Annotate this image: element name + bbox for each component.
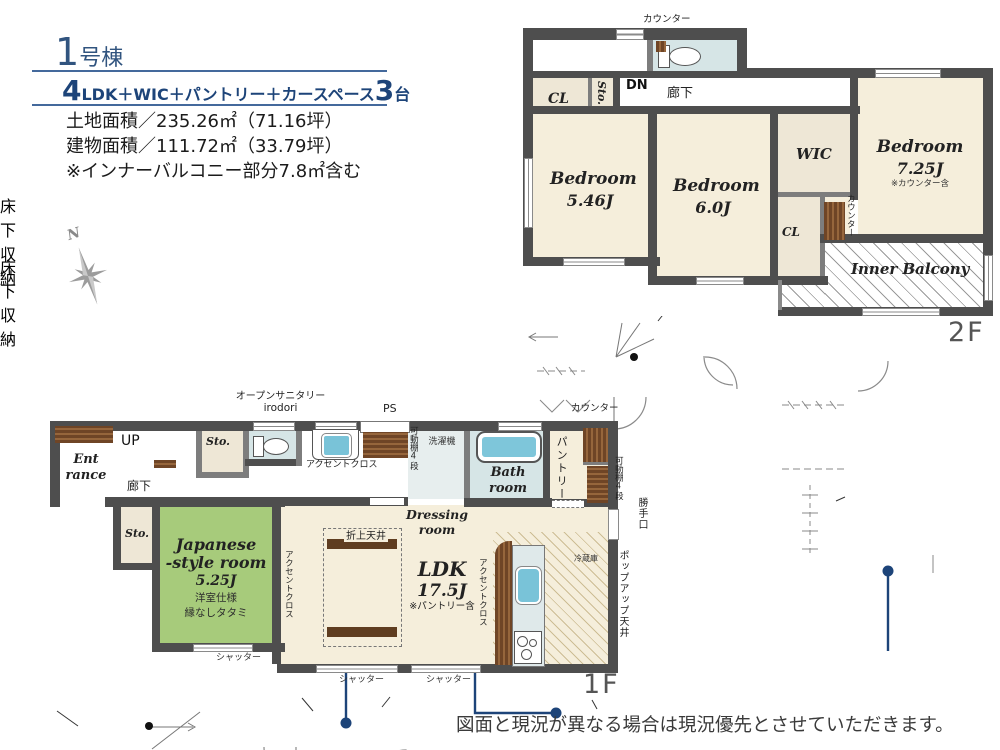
label-bedroom3-note: ※カウンター含 <box>875 180 965 189</box>
label-shutter-2: シャッター <box>339 676 384 686</box>
land-area: 土地面積／235.26㎡（71.16坪） <box>66 112 343 132</box>
label-bedroom2-size: 6.0J <box>673 199 753 217</box>
wall <box>523 106 860 114</box>
label-shutter-3: シャッター <box>426 676 471 686</box>
label-bedroom3-name: Bedroom <box>875 138 965 157</box>
counter-2f-bedroom <box>824 202 845 240</box>
label-bath-1: Bath <box>484 466 532 480</box>
label-sto-mid-1f: Sto. <box>125 528 149 540</box>
label-coffered: 折上天井 <box>344 531 388 542</box>
label-ldk-1: LDK <box>405 558 479 580</box>
back-door-gap <box>608 509 619 540</box>
up-dot <box>145 722 153 730</box>
wall <box>770 108 778 285</box>
floor2-balcony-hatch2 <box>782 285 825 307</box>
wall <box>245 459 302 466</box>
label-sto-2f: Sto. <box>595 81 607 105</box>
washbasin-sink <box>322 434 351 457</box>
compass-rose: N <box>48 220 128 312</box>
washer-box <box>0 162 35 193</box>
label-cl2-2f: CL <box>782 226 800 239</box>
parking-suffix: 台 <box>394 85 410 104</box>
wall <box>778 280 782 310</box>
rule-top <box>32 70 387 72</box>
wall <box>588 78 592 106</box>
window <box>498 422 542 431</box>
pantry-opening <box>552 500 584 508</box>
label-up: UP <box>121 434 140 449</box>
wall <box>296 431 302 466</box>
label-jp-4: 洋室仕様 <box>164 593 268 605</box>
window <box>524 158 533 228</box>
window <box>875 69 941 78</box>
page-title: 1号棟 <box>55 32 123 74</box>
window <box>616 29 644 40</box>
floor-plan-sheet: 1号棟 4LDK＋WIC＋パントリー＋カースペース3台 土地面積／235.26㎡… <box>0 0 1000 750</box>
label-entrance-2: rance <box>62 469 110 483</box>
door-gap <box>370 498 404 505</box>
layout-num: 4 <box>62 74 81 107</box>
window <box>984 255 993 301</box>
unit-number: 1 <box>55 30 79 74</box>
counter-2f-toilet <box>656 41 666 52</box>
label-popup: ポップアップ天井 <box>617 550 628 638</box>
stair-landing <box>154 460 176 468</box>
wall <box>464 498 552 507</box>
label-shutter-1: シャッター <box>216 654 261 664</box>
label-accent-top: アクセントクロス <box>306 461 378 471</box>
label-shelf-top: 可動棚4段 <box>408 426 417 470</box>
wall <box>196 431 202 477</box>
label-floor1: 1F <box>583 670 620 700</box>
wall <box>778 192 850 197</box>
label-hall-2f: 廊下 <box>667 87 693 101</box>
label-wic: WIC <box>796 146 832 163</box>
wall <box>533 71 747 78</box>
pantry-counter <box>583 428 608 462</box>
label-pantry: パントリー <box>555 436 567 501</box>
window <box>696 277 744 285</box>
label-washer: 洗濯機 <box>425 438 459 448</box>
label-bedroom1-name: Bedroom <box>550 170 630 189</box>
layout-text: LDK＋WIC＋パントリー＋カースペース <box>81 85 374 104</box>
stove-burner <box>529 639 537 647</box>
label-back-door: 勝手口 <box>636 497 647 530</box>
wall <box>464 431 470 505</box>
label-jp-5: 縁なしタタミ <box>164 608 268 620</box>
window <box>563 258 625 266</box>
label-entrance-1: Ent <box>62 453 110 467</box>
wall <box>105 497 285 507</box>
wall <box>850 78 858 200</box>
label-sto-top-1f: Sto. <box>206 436 230 448</box>
pantry-shelf <box>587 466 608 503</box>
toilet-bowl-2f <box>669 47 701 66</box>
label-dn: DN <box>626 79 648 93</box>
label-bedroom2-name: Bedroom <box>673 177 753 196</box>
label-jp-2: -style room <box>164 554 268 572</box>
callout-dot-counter <box>341 718 352 729</box>
label-dressing-1: Dressing <box>405 508 469 522</box>
wall <box>243 431 249 477</box>
label-shelf-right: 可動棚4段 <box>613 456 622 500</box>
shelf-top-fixture <box>363 432 408 458</box>
wall <box>737 68 993 78</box>
floor2-eaves-outline <box>0 0 128 27</box>
label-ldk-3: ※パントリー含 <box>400 602 484 612</box>
building-area: 建物面積／111.72㎡（33.79坪） <box>66 137 343 157</box>
wall <box>613 78 620 106</box>
label-floor2: 2F <box>948 318 985 348</box>
bathtub <box>476 431 542 463</box>
wall <box>113 500 121 570</box>
coffered-beam <box>327 627 397 637</box>
label-dressing-2: room <box>405 523 469 537</box>
window <box>253 422 295 431</box>
wall <box>50 497 60 507</box>
window <box>193 644 253 652</box>
label-accent-left: アクセントクロス <box>283 550 292 618</box>
label-counter-1f-top: カウンター <box>571 404 619 414</box>
wall <box>647 40 653 71</box>
stove-burner <box>521 649 532 660</box>
wall <box>196 472 249 478</box>
label-cl1-2f: CL <box>548 92 569 107</box>
shoe-cabinet <box>55 426 113 443</box>
label-bath-2: room <box>484 482 532 496</box>
label-inner-balcony: Inner Balcony <box>851 261 969 278</box>
rule-bottom <box>32 104 387 106</box>
parking-num: 3 <box>375 74 394 107</box>
layout-spec: 4LDK＋WIC＋パントリー＋カースペース3台 <box>62 76 410 107</box>
wall <box>152 507 160 652</box>
label-fridge: 冷蔵庫 <box>574 555 598 564</box>
compass-n: N <box>64 224 83 244</box>
label-ps: PS <box>383 403 397 415</box>
disclaimer: 図面と現況が異なる場合は現況優先とさせていただきます。 <box>456 716 954 736</box>
kitchen-sink <box>516 567 541 604</box>
floor1-stairs <box>0 58 48 96</box>
floor-storage-box-1: 床下収納 <box>0 193 26 219</box>
wall <box>523 28 533 266</box>
kitchen-counter-edge <box>495 541 512 665</box>
toilet-bowl-1f <box>263 438 289 455</box>
wall <box>543 425 550 505</box>
label-hall-1f: 廊下 <box>127 480 151 493</box>
label-open-sanitary-1: オープンサニタリー <box>218 391 343 402</box>
window <box>411 665 481 673</box>
wall <box>272 507 281 664</box>
floor-storage-box-2: 床下収納 <box>0 254 28 283</box>
area-note: ※インナーバルコニー部分7.8㎡含む <box>66 162 361 182</box>
label-open-sanitary-2: irodori <box>218 403 343 415</box>
label-counter-2f-side: カウンター <box>845 194 854 237</box>
label-jp-3: 5.25J <box>164 574 268 589</box>
label-counter-2f-top: カウンター <box>643 15 691 25</box>
callout-dot-balcony <box>883 566 894 577</box>
stove-burner <box>517 636 528 647</box>
label-ldk-2: 17.5J <box>405 582 479 601</box>
dn-dot <box>630 353 638 361</box>
window <box>862 308 940 316</box>
unit-suffix: 号棟 <box>79 46 123 71</box>
window <box>316 665 398 673</box>
label-bedroom1-size: 5.46J <box>550 192 630 210</box>
label-jp-1: Japanese <box>164 536 268 554</box>
label-bedroom3-size: 7.25J <box>875 160 965 178</box>
wall <box>648 108 657 285</box>
